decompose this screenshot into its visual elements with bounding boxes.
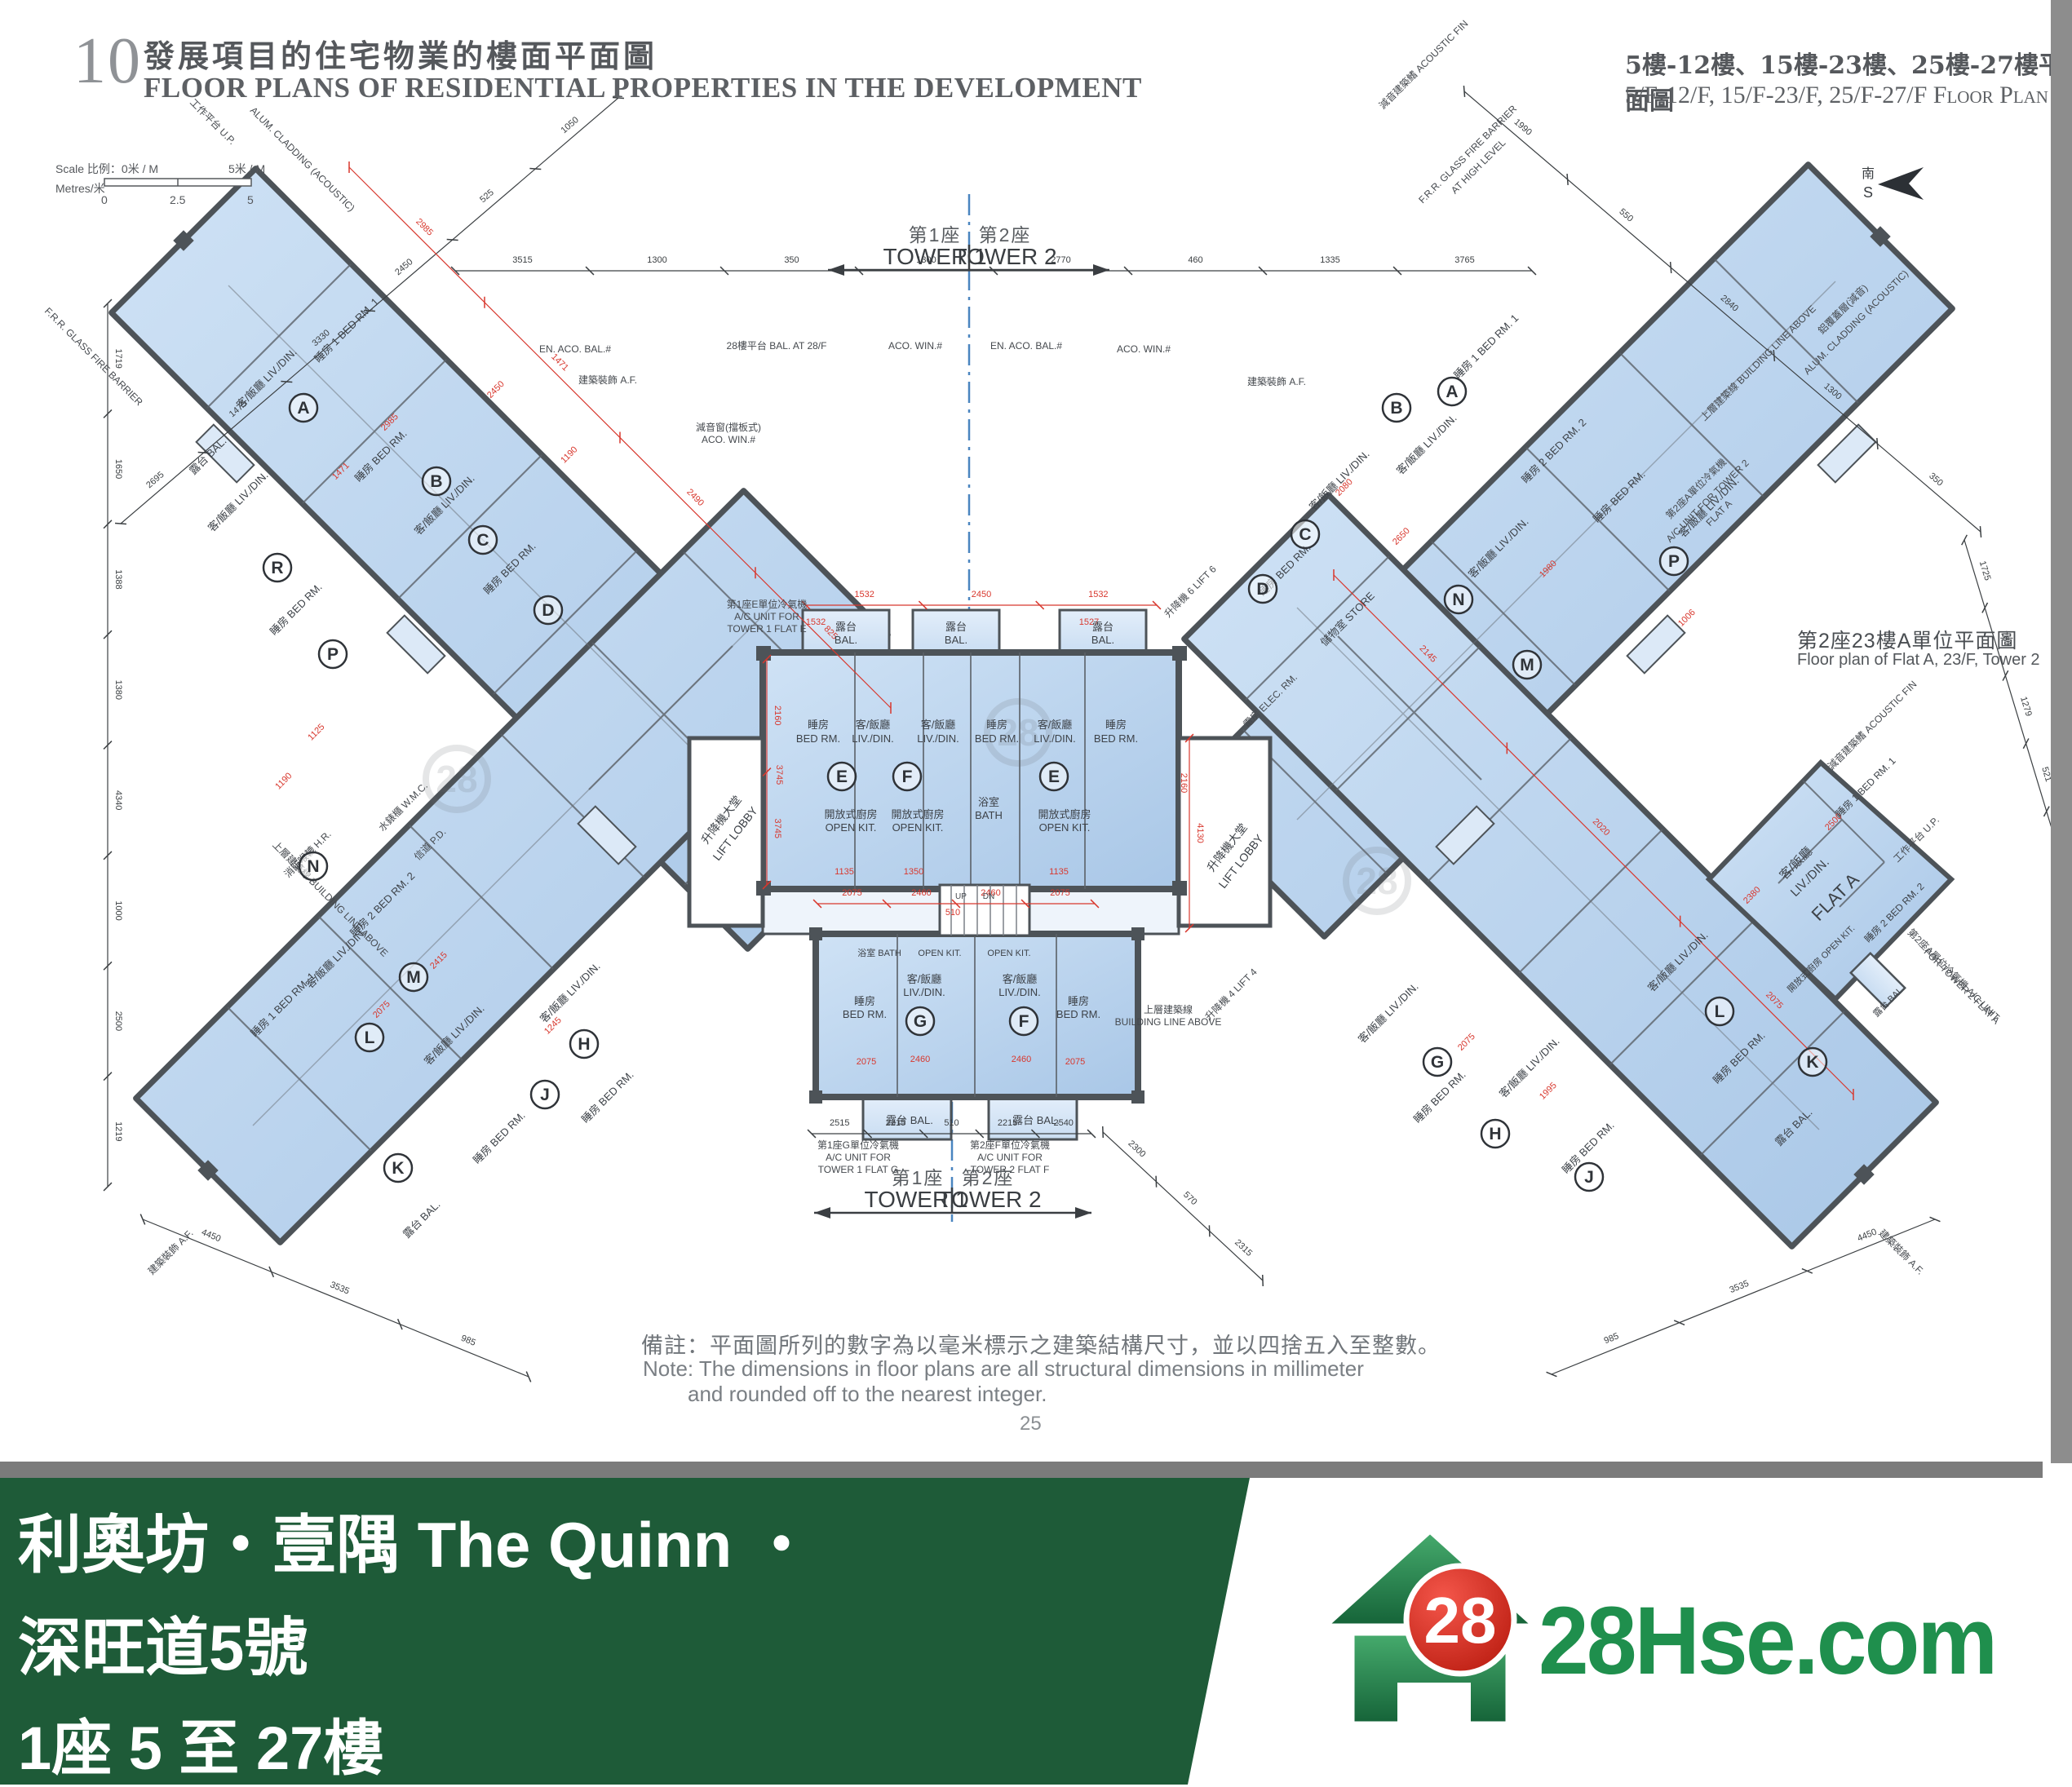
banner-line2: 深旺道5號 (18, 1597, 308, 1688)
dimension-chain-number: 4340 (113, 790, 123, 810)
tower1-zh-bottom: 第1座 (892, 1167, 945, 1188)
dimension-chain-number: 2515 (830, 1118, 849, 1128)
room-label: 客/飯廳 (907, 973, 942, 985)
svg-text:28: 28 (1356, 860, 1397, 902)
scale-tick-0: 0 (101, 193, 108, 206)
unit-badge-letter: B (430, 472, 442, 491)
scale-five: 5米 / M (228, 162, 265, 175)
room-label: 浴室 BATH (857, 947, 901, 958)
room-label: BED RM. (843, 1008, 887, 1020)
dimension-label: 2650 (1391, 526, 1412, 547)
unit-badge-letter: G (914, 1012, 927, 1031)
scale-tick-25: 2.5 (170, 193, 186, 206)
annotation-label: DN (983, 892, 994, 901)
dimension-label: 1350 (904, 867, 923, 877)
unit-badge-letter: K (1806, 1053, 1818, 1072)
unit-badge-letter: G (1431, 1053, 1444, 1072)
annotation-label: 建築裝飾 A.F. (145, 1227, 196, 1277)
room-label: 浴室 (978, 796, 999, 808)
dimension-chain-number: 1000 (113, 900, 123, 920)
svg-text:28: 28 (997, 711, 1038, 754)
annotation-label: 28樓平台 BAL. AT 28/F (727, 339, 827, 352)
room-label: BED RM. (1056, 1008, 1100, 1020)
unit-badge-letter: F (1019, 1012, 1029, 1031)
room-label: 開放式廚房 (1038, 808, 1091, 821)
compass-south-en: S (1863, 184, 1873, 201)
room-label: 睡房 BED RM. (579, 1068, 636, 1126)
unit-badge-letter: C (476, 531, 489, 550)
room-label: LIV./DIN. (903, 986, 945, 998)
room-label: 睡房 (808, 719, 829, 731)
room-label: LIV./DIN. (852, 732, 894, 745)
annotation-label: TOWER 1 FLAT G (818, 1164, 899, 1175)
floor-range-en: 5/F-12/F, 15/F-23/F, 25/F-27/F Floor Pla… (1625, 82, 2048, 109)
room-label: 睡房 1 BED RM. 1 (1451, 312, 1521, 381)
dimension-chain-number: 1300 (647, 255, 666, 265)
room-label: 露台 BAL. (886, 1114, 933, 1126)
dimension-chain-number: 1335 (1320, 255, 1339, 265)
room-label: BED RM. (796, 732, 840, 745)
unit-badge-letter: E (1048, 767, 1060, 786)
bottom-gray-band (0, 1462, 2043, 1478)
room-label: LIV./DIN. (917, 732, 959, 745)
dimension-chain-number: 3745 (773, 819, 782, 838)
annotation-label: F.R.R. GLASS FIRE BARRIER (1416, 103, 1519, 206)
banner-line1: 利奧坊・壹隅 The Quinn ・ (18, 1494, 813, 1586)
dimension-label: 1190 (273, 771, 294, 791)
room-label: 睡房 BED RM. (471, 1109, 528, 1166)
room-label: 睡房 BED RM. (1411, 1068, 1468, 1126)
room-label: 露台 (835, 621, 857, 633)
dimension-chain-number: 1650 (113, 459, 123, 479)
room-label: 露台 BAL. (401, 1198, 442, 1240)
28hse-logo: 28 28Hse.com (1320, 1524, 2021, 1744)
south-arrow-icon (1878, 167, 1924, 200)
room-label: 開放式廚房 (891, 808, 944, 821)
room-label: 露台 (1092, 621, 1113, 633)
room-label: BAL. (835, 634, 857, 646)
annotation-label: ACO. WIN.# (888, 340, 942, 352)
dimension-chain-number: 3535 (1729, 1279, 1751, 1295)
note-en-line1: Note: The dimensions in floor plans are … (643, 1356, 1364, 1382)
room-label: 客/飯廳 (1003, 973, 1038, 985)
dimension-chain-number: 2500 (113, 1011, 123, 1031)
room-label: LIV./DIN. (1034, 732, 1076, 745)
unit-badge-letter: L (365, 1028, 375, 1047)
unit-badge-letter: J (540, 1086, 550, 1104)
unit-badge-letter: R (271, 559, 283, 577)
page-title-zh: 發展項目的住宅物業的樓面平面圖 (144, 31, 657, 76)
dimension-chain-number: 550 (1617, 207, 1635, 224)
note-zh: 備註：平面圖所列的數字為以毫米標示之建築結構尺寸，並以四捨五入至整數。 (641, 1328, 1441, 1360)
room-label: 客/飯廳 (1038, 719, 1073, 731)
logo-badge: 28 (1424, 1584, 1497, 1657)
tower2-wings (1180, 165, 1953, 1247)
svg-text:28: 28 (436, 758, 477, 800)
annotation-label: 減音窗(擋板式) (696, 421, 761, 433)
dimension-label: 1135 (835, 867, 854, 877)
dimension-chain-number: 1388 (113, 569, 123, 589)
unit-badge-letter: H (1489, 1125, 1501, 1143)
dimension-chain-number: 510 (944, 1118, 959, 1128)
unit-badge-letter: L (1715, 1002, 1725, 1021)
page-title-en: FLOOR PLANS OF RESIDENTIAL PROPERTIES IN… (144, 72, 1142, 104)
dimension-label: 2075 (1456, 1032, 1477, 1053)
room-label: BAL. (945, 634, 967, 646)
room-label: 睡房 (854, 995, 875, 1007)
right-gray-bar (2051, 0, 2072, 1463)
dimension-chain-number: 985 (1603, 1331, 1621, 1346)
annotation-label: A/C UNIT FOR (977, 1152, 1043, 1163)
flat-a-heading-zh: 第2座23樓A單位平面圖 (1797, 625, 2017, 654)
dimension-chain-number: 2450 (972, 590, 991, 599)
tower2-zh-bottom: 第2座 (962, 1167, 1015, 1188)
dimension-label: 2160 (1179, 773, 1189, 793)
room-label: OPEN KIT. (892, 821, 944, 834)
unit-badge-letter: D (542, 601, 554, 620)
dimension-chain-black: 23005702315 (1103, 1126, 1264, 1286)
dimension-label: 1135 (1049, 867, 1069, 877)
room-label: 露台 BAL. (1012, 1114, 1060, 1126)
dimension-chain-number: 2075 (1050, 888, 1069, 898)
annotation-label: EN. ACO. BAL.# (539, 343, 611, 355)
dimension-chain-black: 17191650138813804340100025001219 (104, 299, 123, 1191)
flat-a-heading-en: Floor plan of Flat A, 23/F, Tower 2 (1797, 651, 2040, 670)
scale-title: Scale 比例：0米 / M (55, 162, 158, 175)
page-number: 25 (1020, 1413, 1042, 1435)
dimension-chain-black: 44503535985 (140, 1214, 530, 1382)
dimension-label: 2075 (1065, 1057, 1085, 1067)
room-label: OPEN KIT. (987, 949, 1030, 958)
28hse-house-icon: 28 (1320, 1524, 1540, 1727)
compass: 南 S (1862, 166, 1924, 201)
tower1-zh-top: 第1座 (909, 224, 962, 245)
dimension-label: 510 (945, 908, 960, 918)
annotation-label: ACO. WIN.# (1117, 343, 1171, 355)
annotation-label: 上層建築線 (1144, 1003, 1193, 1015)
room-label: 睡房 BED RM. (268, 581, 325, 638)
unit-badge-letter: F (902, 767, 913, 786)
unit-badge-letter: K (392, 1159, 404, 1178)
dimension-chain-number: 2460 (911, 888, 931, 898)
room-label: BATH (975, 809, 1003, 821)
dimension-label: 1532 (806, 617, 826, 627)
dimension-chain-number: 1719 (113, 348, 123, 368)
dimension-chain-number: 525 (478, 188, 496, 205)
annotation-label: 第1座G單位冷氣機 (817, 1139, 899, 1151)
note-en-line2: and rounded off to the nearest integer. (688, 1382, 1047, 1407)
dimension-chain-number: 4130 (1195, 823, 1205, 843)
annotation-label: EN. ACO. BAL.# (990, 340, 1062, 352)
scale-metres: Metres/米 (55, 182, 105, 195)
room-label: BAL. (1091, 634, 1114, 646)
annotation-label: 升降機 4 LIFT 4 (1202, 966, 1260, 1023)
unit-badge-letter: D (1256, 580, 1268, 599)
dimension-chain-number: 1725 (1977, 560, 1993, 582)
dimension-label: 2075 (857, 1057, 876, 1067)
unit-badge-letter: B (1390, 399, 1402, 418)
scale-tick-5: 5 (247, 193, 254, 206)
annotation-label: FOR TOWER 2 FLAT A (1922, 946, 2002, 1026)
annotation-label: 第1座E單位冷氣機 (727, 598, 808, 610)
room-label: 客/飯廳 LIV./DIN. (1394, 412, 1459, 477)
room-label: LIV./DIN. (998, 986, 1041, 998)
room-label: 客/飯廳 (921, 719, 956, 731)
dimension-chain-number: 1279 (2018, 696, 2034, 718)
floor-plan-page: { "page": { "section_number": "10", "tit… (0, 0, 2072, 1785)
dimension-chain-number: 4450 (200, 1227, 222, 1244)
dimension-chain-number: 350 (1927, 471, 1945, 489)
dimension-label: 1125 (306, 722, 326, 742)
dimension-chain-number: 985 (459, 1334, 477, 1348)
room-label: 開放式廚房 (824, 808, 877, 821)
dimension-chain-number: 2160 (773, 706, 782, 725)
annotation-label: A/C UNIT FOR (734, 611, 799, 622)
room-label: 露台 (945, 621, 967, 633)
room-label: BED RM. (1094, 732, 1138, 745)
compass-south-zh: 南 (1862, 166, 1875, 181)
annotation-label: UP (955, 892, 967, 901)
tower2-zh-top: 第2座 (979, 224, 1032, 245)
room-label: 睡房 (1068, 995, 1089, 1007)
unit-badge-letter: N (307, 857, 319, 876)
annotation-label: ACO. WIN.# (702, 434, 755, 445)
unit-badge-letter: N (1452, 591, 1464, 609)
annotation-label: TOWER 1 FLAT E (727, 623, 806, 635)
dimension-label: 2460 (1012, 1055, 1031, 1064)
annotation-label: 建築裝飾 A.F. (1876, 1227, 1927, 1277)
room-label: OPEN KIT. (826, 821, 877, 834)
dimension-chain-number: 2075 (842, 888, 861, 898)
dimension-chain-number: 3515 (512, 255, 532, 265)
dimension-label: 3745 (774, 765, 784, 785)
dimension-chain-number: 460 (1188, 255, 1202, 265)
dimension-label: 1995 (1538, 1081, 1559, 1102)
dimension-chain-number: 3535 (329, 1280, 351, 1296)
section-number: 10 (73, 24, 142, 99)
unit-badge-letter: A (1446, 383, 1458, 401)
dimension-chain-number: 1219 (113, 1121, 123, 1141)
unit-badge-letter: P (327, 645, 339, 664)
dimension-chain-number: 1532 (1088, 590, 1108, 599)
annotation-label: 減音建築鰭 ACOUSTIC FIN (1376, 17, 1470, 111)
dimension-chain-black: 98535354450 (1547, 1217, 1941, 1376)
room-label: OPEN KIT. (918, 949, 961, 958)
annotation-label: 建築裝飾 A.F. (1247, 375, 1306, 387)
annotation-label: 減音建築鰭 ACOUSTIC FIN (1825, 678, 1919, 772)
room-label: OPEN KIT. (1039, 821, 1091, 834)
unit-badge-letter: P (1668, 552, 1680, 571)
unit-badge-letter: H (578, 1035, 590, 1054)
unit-badge-letter: C (1299, 525, 1311, 544)
unit-badge-letter: E (836, 767, 848, 786)
unit-badge-letter: J (1584, 1168, 1594, 1187)
dimension-label: 1190 (559, 445, 579, 465)
dimension-label: 1006 (1676, 608, 1698, 629)
unit-badge-letter: M (1520, 656, 1534, 675)
dimension-chain-number: 4450 (1856, 1227, 1878, 1243)
dimension-chain-number: 350 (784, 255, 799, 265)
central-block (689, 610, 1270, 1139)
dimension-label: 2450 (485, 379, 507, 400)
logo-text: 28Hse.com (1539, 1586, 1995, 1696)
dimension-chain-number: 1532 (854, 590, 874, 599)
dimension-chain-number: 570 (1181, 1190, 1199, 1207)
annotation-label: 第2座F單位冷氣機 (970, 1139, 1050, 1151)
dimension-chain-number: 1380 (113, 680, 123, 700)
annotation-label: A/C UNIT FOR (826, 1152, 891, 1163)
tower2-en-bottom: TOWER 2 (937, 1187, 1041, 1212)
unit-badge-letter: A (297, 399, 309, 418)
room-label: 客/飯廳 (856, 719, 891, 731)
dimension-label: 2460 (910, 1055, 930, 1064)
annotation-label: 建築裝飾 A.F. (578, 374, 637, 386)
room-label: 睡房 (1105, 719, 1127, 731)
room-label: 客/飯廳 LIV./DIN. (1356, 980, 1421, 1046)
dimension-chain-number: 3765 (1454, 255, 1474, 265)
banner-line3: 1座 5 至 27樓 (18, 1700, 383, 1787)
unit-badge-letter: M (406, 968, 421, 987)
